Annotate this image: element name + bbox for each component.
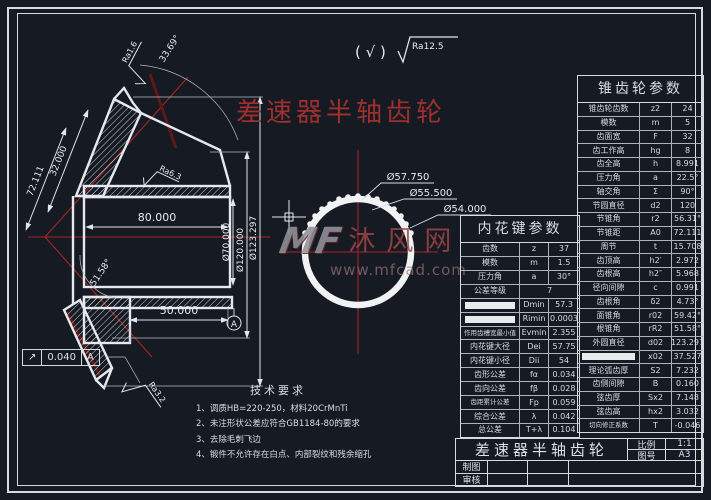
- param-symbol: λ: [520, 410, 549, 423]
- spline-end-view: Ø57.750 Ø55.500 Ø54.000: [272, 150, 491, 354]
- table-row: 内花键大径Dei57.75: [461, 340, 579, 354]
- table-row: 弦齿厚Sx27.148: [578, 392, 703, 406]
- param-symbol: A0: [640, 227, 672, 240]
- redacted-label-bar: [465, 316, 515, 323]
- param-label: [461, 299, 520, 312]
- table-row: 切向修正系数T-0.046: [578, 419, 703, 432]
- param-symbol: Dmin: [520, 299, 549, 312]
- table-row: 总公差T+λ0.104: [461, 424, 579, 437]
- upper-tooth-band: [76, 99, 141, 196]
- param-label: 齿侧间隙: [578, 378, 640, 391]
- param-symbol: F: [640, 131, 672, 144]
- crosshair-cursor-icon: [272, 200, 306, 234]
- param-symbol: d2: [640, 199, 672, 212]
- datum-a-symbol: A: [227, 308, 241, 330]
- param-symbol: d02: [640, 337, 672, 350]
- param-value: 37.527: [672, 351, 703, 364]
- param-label: 弦齿高: [578, 406, 640, 419]
- table-row: 外圆直径d02123.297: [578, 337, 703, 351]
- param-label: 压力角: [578, 172, 640, 185]
- table-row: 齿根角δ24.73°: [578, 296, 703, 310]
- param-label: 总公差: [461, 424, 520, 437]
- param-symbol: hx2: [640, 406, 672, 419]
- param-value: 5.968: [672, 268, 703, 281]
- table-row: 根锥角rR251.58°: [578, 323, 703, 337]
- param-symbol: T+λ: [520, 424, 549, 437]
- dim-face-width: 32.000: [49, 145, 70, 178]
- dim-dia-120: Ø120.000: [235, 228, 246, 273]
- param-value: 2.355: [549, 327, 579, 340]
- param-value: 0.104: [549, 424, 579, 437]
- param-value: 2.972: [672, 254, 703, 267]
- param-value: 24: [672, 103, 703, 116]
- bevel-param-table: 锥齿轮参数 锥齿轮齿数z224模数m5齿面宽F32齿工作高hg8齿全高h8.99…: [577, 75, 704, 433]
- param-symbol: t: [640, 241, 672, 254]
- dim-cone-distance: 72.111: [26, 165, 47, 198]
- sheet-value: A3: [666, 450, 703, 461]
- param-symbol: h2″: [640, 268, 672, 281]
- param-label: 锥齿轮齿数: [578, 103, 640, 116]
- param-value: 7.148: [672, 392, 703, 405]
- param-label: 齿距累计公差: [461, 396, 520, 409]
- param-symbol: z: [520, 243, 549, 256]
- surface-finish-note: ( √ ) Ra12.5: [355, 37, 458, 62]
- ra63-label: Ra6.3: [158, 164, 183, 182]
- dim-dia-70: Ø70.000: [221, 222, 232, 261]
- param-label: 齿数: [461, 243, 520, 256]
- sheet-label: 图号: [628, 450, 666, 461]
- param-symbol: δ2: [640, 296, 672, 309]
- table-row: 齿顶高h2′2.972: [578, 254, 703, 268]
- param-symbol: r02: [640, 309, 672, 322]
- param-value: 0.034: [549, 368, 579, 381]
- param-label: 周节: [578, 241, 640, 254]
- table-row: 面锥角r0259.42°: [578, 309, 703, 323]
- table-row: 齿向公差fβ0.028: [461, 382, 579, 396]
- param-value: 0.160: [672, 378, 703, 391]
- param-symbol: hg: [640, 144, 672, 157]
- title-block: 差速器半轴齿轮 比例 1:1 图号 A3 制图 审核: [455, 438, 704, 487]
- param-value: 3.032: [672, 406, 703, 419]
- param-label: 面锥角: [578, 309, 640, 322]
- param-label: 理论弧齿厚: [578, 364, 640, 377]
- dim-angle-3369: 33.69°: [158, 33, 183, 64]
- param-value: 15.708: [672, 241, 703, 254]
- datum-a-label: A: [231, 320, 238, 330]
- table-row: 综合公差λ0.042: [461, 410, 579, 424]
- param-symbol: a: [640, 172, 672, 185]
- param-value: 56.31°: [672, 213, 703, 226]
- param-value: 5: [672, 117, 703, 130]
- param-label: 齿向公差: [461, 382, 520, 395]
- tech-req-title: 技术要求: [218, 382, 338, 398]
- table-row: 齿面宽F32: [578, 131, 703, 145]
- table-row: 节锥角r256.31°: [578, 213, 703, 227]
- param-symbol: fβ: [520, 382, 549, 395]
- drawn-by-label: 制图: [456, 461, 488, 474]
- param-symbol: z2: [640, 103, 672, 116]
- param-label: 根锥角: [578, 323, 640, 336]
- scale-label: 比例: [628, 439, 666, 450]
- param-label: 节锥角: [578, 213, 640, 226]
- table-row: 压力角a30°: [461, 271, 579, 285]
- dim-angle-5158: 51.58°: [89, 258, 114, 289]
- technical-requirements: 技术要求 1、调质HB=220-250，材料20CrMnTi 2、未注形状公差应…: [196, 382, 401, 460]
- cad-drawing-canvas: ( √ ) Ra12.5: [0, 0, 711, 500]
- param-value: 0.059: [549, 396, 579, 409]
- param-label: 切向修正系数: [578, 419, 640, 432]
- runout-value: 0.040: [42, 350, 82, 365]
- param-value: 22.5°: [672, 172, 703, 185]
- scale-value: 1:1: [666, 439, 703, 450]
- tech-req-item: 1、调质HB=220-250，材料20CrMnTi: [196, 402, 401, 414]
- param-symbol: rR2: [640, 323, 672, 336]
- tech-req-item: 3、去除毛刺飞边: [196, 433, 401, 445]
- table-row: 公差等级7: [461, 285, 579, 299]
- param-value: 30°: [549, 271, 579, 284]
- param-label: 齿工作高: [578, 144, 640, 157]
- drawn-date-cell: [528, 461, 569, 474]
- table-row: 齿形公差fα0.034: [461, 368, 579, 382]
- table-row: 节锥距A072.111: [578, 227, 703, 241]
- param-symbol: fα: [520, 368, 549, 381]
- checked-extra-cell: [569, 474, 703, 487]
- param-label: [461, 313, 520, 326]
- dim-dia-54000: Ø54.000: [444, 203, 487, 215]
- param-symbol: Dei: [520, 340, 549, 353]
- table-row: Rimin0.0003: [461, 313, 579, 327]
- dim-bore-width: 80.000: [138, 211, 177, 224]
- drawn-extra-cell: [569, 461, 703, 474]
- bevel-table-title: 锥齿轮参数: [578, 76, 703, 103]
- table-row: 模数m1.5: [461, 257, 579, 271]
- table-row: 内花键小径Dii54: [461, 354, 579, 368]
- bevel-table-body: 锥齿轮齿数z224模数m5齿面宽F32齿工作高hg8齿全高h8.991压力角a2…: [578, 103, 703, 432]
- table-row: 作用齿槽宽最小值Evmin2.355: [461, 327, 579, 341]
- checked-by-cell: [488, 474, 528, 487]
- dim-dia-123: Ø123.297: [248, 216, 259, 260]
- table-row: 弦齿高hx23.032: [578, 406, 703, 420]
- table-row: 齿数z37: [461, 243, 579, 257]
- param-value: 1.5: [549, 257, 579, 270]
- table-row: 齿侧间隙B0.160: [578, 378, 703, 392]
- param-symbol: h2′: [640, 254, 672, 267]
- param-value: 0.042: [549, 410, 579, 423]
- runout-icon: ↗: [23, 350, 42, 365]
- param-symbol: r2: [640, 213, 672, 226]
- param-symbol: c: [640, 282, 672, 295]
- param-value: 8.991: [672, 158, 703, 171]
- table-row: 齿全高h8.991: [578, 158, 703, 172]
- param-symbol: x02: [640, 351, 672, 364]
- spline-param-table: 内花键参数 齿数z37模数m1.5压力角a30°公差等级7Dmin57.3Rim…: [460, 215, 580, 438]
- param-value: 72.111: [672, 227, 703, 240]
- param-label: 齿顶高: [578, 254, 640, 267]
- param-value: 120: [672, 199, 703, 212]
- checked-by-label: 审核: [456, 474, 488, 487]
- param-symbol: Dii: [520, 354, 549, 367]
- param-label: 模数: [578, 117, 640, 130]
- param-label: 综合公差: [461, 410, 520, 423]
- param-symbol: Rimin: [520, 313, 549, 326]
- upper-hatch-strip: [84, 186, 230, 197]
- checked-date-cell: [528, 474, 569, 487]
- title-block-part-name: 差速器半轴齿轮: [456, 439, 628, 461]
- param-label: 内花键小径: [461, 354, 520, 367]
- param-value: 57.3: [549, 299, 579, 312]
- table-row: 节圆直径d2120: [578, 199, 703, 213]
- table-row: 压力角a22.5°: [578, 172, 703, 186]
- table-row: 理论弧齿厚S27.232: [578, 364, 703, 378]
- param-label: 外圆直径: [578, 337, 640, 350]
- param-value: 123.297: [672, 337, 703, 350]
- surface-roughness-value: Ra12.5: [412, 42, 444, 52]
- spline-table-body: 齿数z37模数m1.5压力角a30°公差等级7Dmin57.3Rimin0.00…: [461, 243, 579, 437]
- redacted-label-bar: [465, 302, 515, 309]
- table-row: 锥齿轮齿数z224: [578, 103, 703, 117]
- param-symbol: m: [640, 117, 672, 130]
- drawing-title: 差速器半轴齿轮: [236, 92, 446, 129]
- param-symbol: S2: [640, 364, 672, 377]
- table-row: 齿距累计公差Fp0.059: [461, 396, 579, 410]
- param-label: 齿形公差: [461, 368, 520, 381]
- param-label: 轴交角: [578, 186, 640, 199]
- param-label: 齿全高: [578, 158, 640, 171]
- param-value: 7: [520, 285, 579, 298]
- param-symbol: h: [640, 158, 672, 171]
- param-value: 37: [549, 243, 579, 256]
- param-label: [578, 351, 640, 364]
- table-row: 径向间隙c0.991: [578, 282, 703, 296]
- param-value: 32: [672, 131, 703, 144]
- param-value: 0.991: [672, 282, 703, 295]
- tech-req-item: 4、锻件不允许存在白点、内部裂纹和残余缩孔: [196, 448, 401, 460]
- runout-tolerance-frame: ↗ 0.040 A: [22, 349, 100, 366]
- param-symbol: Evmin: [520, 327, 549, 340]
- param-symbol: B: [640, 378, 672, 391]
- table-row: 齿工作高hg8: [578, 144, 703, 158]
- param-symbol: Fp: [520, 396, 549, 409]
- dim-hub-length: 50.000: [160, 304, 199, 317]
- param-label: 内花键大径: [461, 340, 520, 353]
- table-row: 模数m5: [578, 117, 703, 131]
- param-label: 公差等级: [461, 285, 520, 298]
- param-value: 8: [672, 144, 703, 157]
- param-label: 径向间隙: [578, 282, 640, 295]
- param-symbol: Sx2: [640, 392, 672, 405]
- surface-default-mark: ( √ ): [355, 43, 386, 61]
- param-symbol: a: [520, 271, 549, 284]
- param-value: 0.0003: [549, 313, 579, 326]
- param-value: 51.58°: [672, 323, 703, 336]
- tech-req-item: 2、未注形状公差应符合GB1184-80的要求: [196, 417, 401, 429]
- param-value: 54: [549, 354, 579, 367]
- table-row: x0237.527: [578, 351, 703, 365]
- gear-section-outline: [64, 88, 232, 388]
- param-symbol: m: [520, 257, 549, 270]
- param-value: 0.028: [549, 382, 579, 395]
- table-row: 齿根高h2″5.968: [578, 268, 703, 282]
- param-symbol: Σ: [640, 186, 672, 199]
- table-row: Dmin57.3: [461, 299, 579, 313]
- param-label: 作用齿槽宽最小值: [461, 327, 520, 340]
- param-value: 90°: [672, 186, 703, 199]
- param-label: 齿根高: [578, 268, 640, 281]
- drawn-by-cell: [488, 461, 528, 474]
- dim-dia-55500: Ø55.500: [410, 187, 453, 199]
- redacted-label-bar: [582, 353, 634, 360]
- section-dimensions: 80.000 50.000 Ø70.000 Ø120.000 Ø123.297 …: [26, 33, 260, 386]
- spline-table-title: 内花键参数: [461, 216, 579, 243]
- param-label: 齿根角: [578, 296, 640, 309]
- param-label: 弦齿厚: [578, 392, 640, 405]
- param-symbol: T: [640, 419, 672, 432]
- dim-dia-57750: Ø57.750: [387, 171, 430, 183]
- param-label: 模数: [461, 257, 520, 270]
- param-value: 57.75: [549, 340, 579, 353]
- param-label: 节锥距: [578, 227, 640, 240]
- param-value: -0.046: [672, 419, 703, 432]
- table-row: 周节t15.708: [578, 241, 703, 255]
- param-label: 节圆直径: [578, 199, 640, 212]
- ra16-icon: Ra1.6: [114, 37, 162, 88]
- param-value: 59.42°: [672, 309, 703, 322]
- ra32-icon: Ra3.2: [119, 369, 169, 421]
- param-value: 7.232: [672, 364, 703, 377]
- runout-datum: A: [82, 350, 99, 365]
- param-label: 齿面宽: [578, 131, 640, 144]
- table-row: 轴交角Σ90°: [578, 186, 703, 200]
- param-value: 4.73°: [672, 296, 703, 309]
- param-label: 压力角: [461, 271, 520, 284]
